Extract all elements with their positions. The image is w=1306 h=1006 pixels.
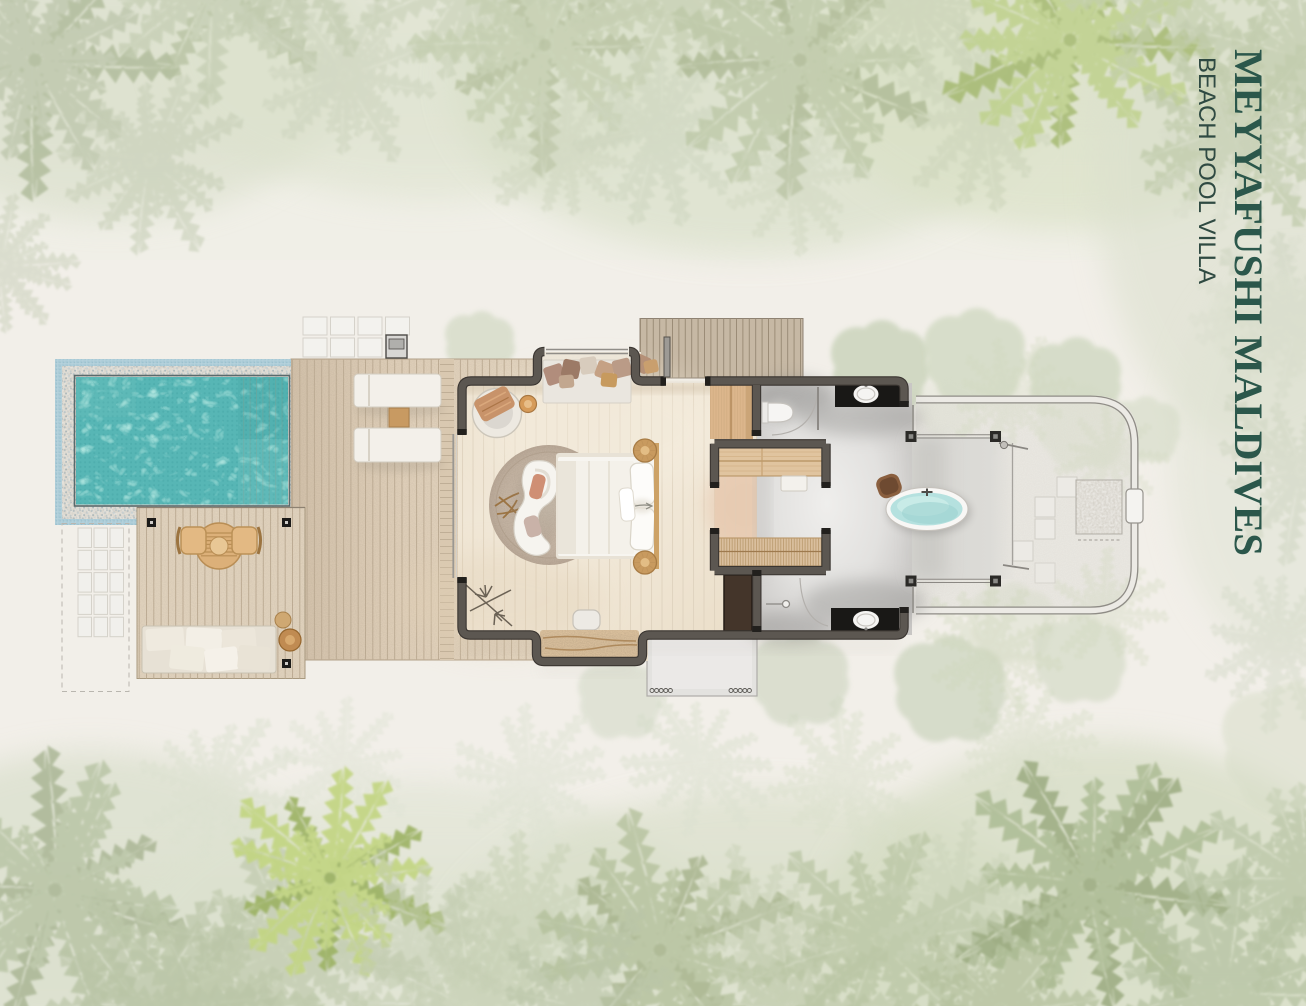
svg-text:BEACH POOL VILLA: BEACH POOL VILLA xyxy=(1193,57,1220,284)
svg-text:MEYYAFUSHI MALDIVES: MEYYAFUSHI MALDIVES xyxy=(1226,49,1271,556)
